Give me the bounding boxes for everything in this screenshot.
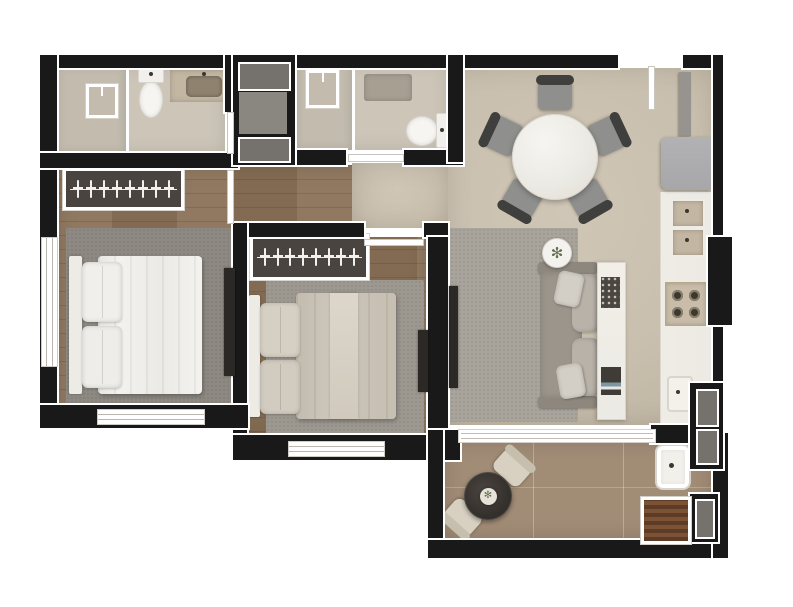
hanger — [77, 180, 79, 198]
hanger — [302, 248, 304, 266]
hanger — [353, 248, 355, 266]
hanger — [289, 248, 291, 266]
wall-right-column — [708, 237, 732, 325]
burner — [689, 290, 700, 301]
bedroom-2-window — [288, 441, 385, 457]
shaft-duct — [238, 62, 291, 91]
kitchen-tall-cabinet — [679, 72, 691, 136]
bath-mat — [364, 74, 412, 101]
balcony-table: ✻ — [464, 472, 512, 520]
wall-living-left — [428, 237, 448, 433]
dchair — [538, 80, 572, 110]
bedroom-1-side-window — [41, 237, 58, 367]
shaft-duct — [696, 429, 719, 465]
hanger — [340, 248, 342, 266]
sink-drain — [669, 463, 674, 468]
toilet-flush-button — [149, 72, 153, 76]
shower-fixture — [306, 70, 339, 108]
sink-drain — [685, 238, 689, 242]
bed-pillows — [82, 262, 122, 322]
kitchen-sink-basin — [671, 228, 705, 257]
refrigerator — [661, 137, 711, 190]
burner — [672, 307, 683, 318]
balcony-sliding-door — [458, 429, 656, 443]
vanity-sink-basin — [186, 76, 222, 97]
sofa — [538, 262, 602, 408]
service-shaft — [690, 383, 723, 469]
floor-plan: ✻ ✻ — [0, 0, 793, 607]
shower-glass-partition — [352, 62, 355, 150]
bedroom-2-tv-panel — [418, 330, 428, 392]
living-room-tv-panel — [449, 286, 458, 388]
dining-table — [512, 114, 598, 200]
hanger — [90, 180, 92, 198]
shower-glass-partition — [126, 66, 129, 153]
sideboard-books — [601, 367, 621, 395]
hanger — [315, 248, 317, 266]
bedroom-1-tv-panel — [224, 268, 235, 376]
bed-headboard — [69, 256, 82, 394]
shaft-duct — [238, 137, 291, 163]
bedroom-2-wardrobe — [250, 234, 369, 280]
sofa-pillow — [555, 362, 587, 400]
plant-icon: ✻ — [484, 491, 492, 501]
wall-bathroom-2-right — [448, 55, 463, 162]
side-table: ✻ — [542, 238, 572, 268]
bathroom-2-door-leaf — [348, 154, 404, 162]
hanger — [129, 180, 131, 198]
sideboard-decor-panel — [601, 277, 620, 308]
shower-fixture — [86, 84, 118, 118]
bed-pillows — [82, 326, 122, 388]
hanger — [142, 180, 144, 198]
toilet-bowl — [406, 116, 438, 146]
wall-bedroom-2-top — [424, 223, 448, 237]
bathroom-suite-door-leaf — [227, 112, 234, 154]
barbecue-grill — [641, 497, 691, 544]
shaft-duct — [696, 389, 719, 427]
hanger — [328, 248, 330, 266]
entry-door-leaf — [648, 66, 655, 110]
bedroom-1-wardrobe — [63, 168, 184, 210]
bed-throw-runner — [330, 293, 358, 419]
burner — [689, 307, 700, 318]
bed-pillows — [260, 303, 300, 357]
toilet-bowl — [139, 81, 163, 118]
table-plant: ✻ — [480, 488, 497, 505]
hanger — [103, 180, 105, 198]
burner — [672, 290, 683, 301]
hanger — [116, 180, 118, 198]
wall-bedroom-2-top — [247, 223, 364, 237]
plant-icon: ✻ — [551, 246, 564, 261]
wall-balcony-left — [428, 430, 443, 542]
wall-top — [40, 55, 618, 68]
hanger — [155, 180, 157, 198]
service-shaft — [233, 55, 295, 165]
hanger — [168, 180, 170, 198]
wall-bathroom-suite-bottom — [40, 153, 238, 168]
toilet-flush-button — [440, 128, 444, 132]
bed-headboard — [249, 295, 260, 417]
shaft-duct — [695, 499, 715, 539]
hanger — [277, 248, 279, 266]
wall-bathroom-2-bottom — [288, 150, 346, 165]
hall-stone-floor — [352, 163, 452, 228]
faucet — [202, 72, 206, 76]
bedroom-1-window — [97, 409, 205, 425]
bedroom-2-door-leaf — [364, 239, 424, 246]
bedroom-1-door-leaf — [227, 170, 234, 224]
kitchen-sink-basin — [671, 199, 705, 228]
faucet — [676, 390, 680, 394]
gas-cooktop — [665, 282, 707, 326]
sink-drain — [685, 209, 689, 213]
shaft-interior — [239, 92, 287, 134]
service-shaft — [690, 494, 718, 542]
hanger — [264, 248, 266, 266]
bed-pillows — [260, 360, 300, 414]
